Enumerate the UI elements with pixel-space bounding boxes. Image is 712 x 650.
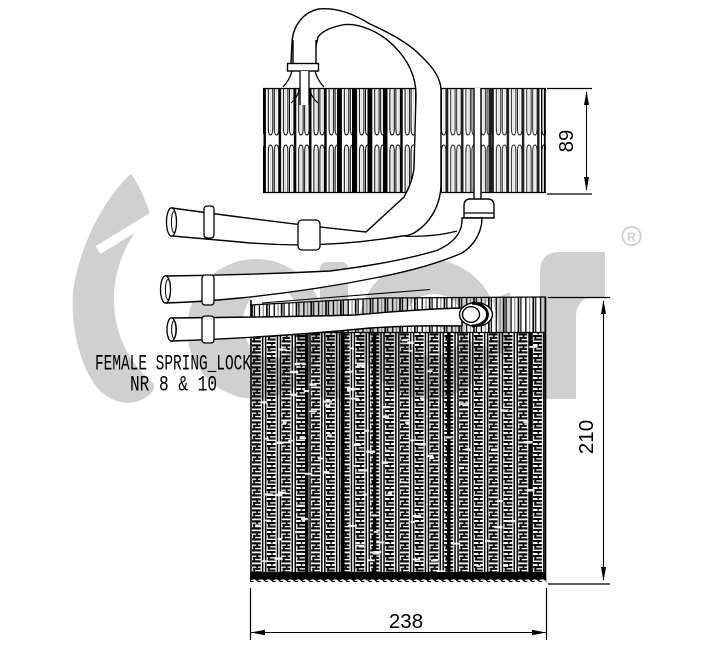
- svg-text:89: 89: [555, 130, 578, 153]
- svg-text:R: R: [627, 230, 636, 244]
- svg-text:238: 238: [389, 610, 423, 633]
- svg-text:210: 210: [575, 420, 598, 454]
- svg-text:NR 8 & 10: NR 8 & 10: [130, 373, 217, 398]
